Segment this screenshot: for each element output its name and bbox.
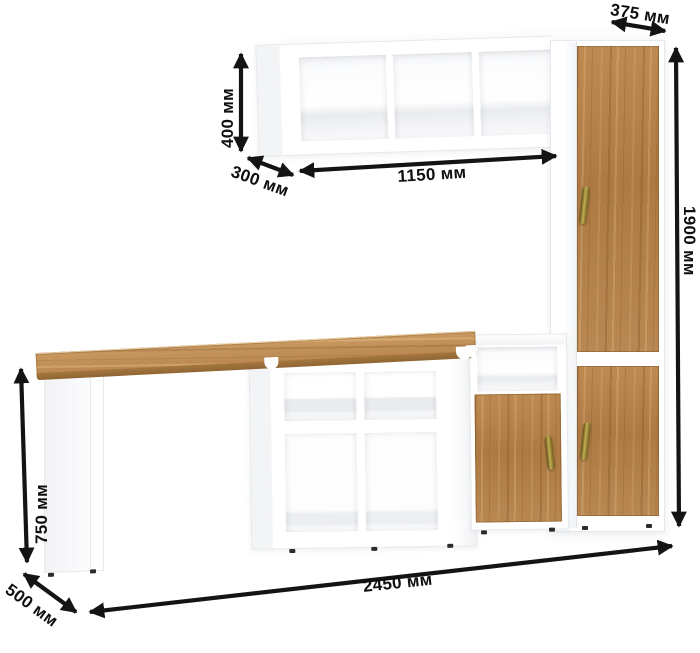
cube-shelf-opening-bottom-right [365, 432, 438, 531]
cube-shelf-opening-top-right [364, 371, 437, 420]
dim-label-desk-height: 750 мм [32, 484, 52, 544]
wall-shelf-opening-1 [299, 55, 389, 142]
wall-shelf [255, 35, 568, 157]
small-cabinet-top-face [470, 335, 566, 346]
cube-shelf-foot-1 [289, 549, 295, 553]
small-cabinet [469, 333, 569, 534]
dim-label-shelf-depth: 300 мм [228, 162, 291, 201]
wall-shelf-opening-3 [479, 49, 560, 135]
desk-leg-front-edge [90, 357, 104, 571]
cube-shelf-foot-3 [447, 544, 453, 548]
dim-arrow-desk-height [21, 369, 27, 562]
desk-leg-panel [44, 359, 106, 573]
dim-label-depth-top: 375 мм [609, 0, 671, 29]
furniture-dimension-diagram: 375 мм 400 мм 300 мм 1150 мм 1900 мм 750… [0, 0, 700, 653]
tall-cabinet-foot-left [582, 526, 588, 530]
tall-cabinet-foot-right [646, 524, 652, 528]
cube-shelf-left-side [250, 360, 286, 548]
cube-shelf-opening-bottom-left [285, 433, 358, 532]
wall-shelf-opening-2 [393, 52, 475, 138]
cube-shelf-foot-2 [371, 547, 377, 551]
wall-shelf-left-side [256, 45, 299, 156]
dim-label-desk-depth: 500 мм [1, 580, 61, 631]
small-cabinet-foot-1 [481, 530, 487, 534]
dim-label-shelf-height: 400 мм [218, 88, 238, 148]
desk-leg-foot-1 [48, 573, 54, 577]
tall-cabinet-lower-door [577, 366, 659, 516]
small-cabinet-foot-2 [549, 528, 555, 532]
dim-label-shelf-width: 1150 мм [397, 163, 467, 187]
cube-shelf-opening-top-left [284, 372, 357, 421]
dim-label-total-height: 1900 мм [679, 206, 699, 276]
dim-arrow-total-height [676, 48, 679, 526]
cube-shelf [249, 356, 478, 555]
tall-cabinet-upper-door [577, 46, 659, 352]
dim-label-total-width: 2450 мм [362, 570, 434, 597]
small-cabinet-open-niche [477, 347, 557, 392]
desk-leg-foot-2 [90, 569, 96, 573]
